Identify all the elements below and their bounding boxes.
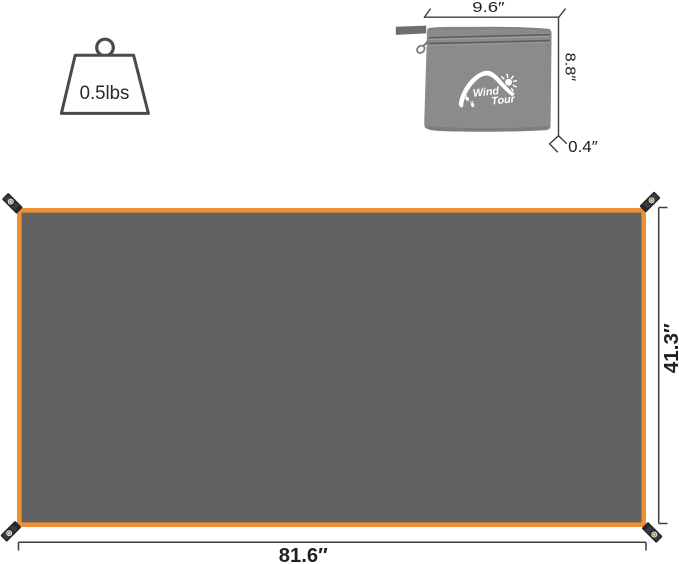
svg-text:0.5lbs: 0.5lbs xyxy=(80,82,130,104)
svg-text:9.6″: 9.6″ xyxy=(472,0,505,16)
svg-text:0.4″: 0.4″ xyxy=(568,139,598,156)
svg-text:Tour: Tour xyxy=(491,93,517,107)
svg-text:8.8″: 8.8″ xyxy=(561,53,578,82)
svg-text:41.3″: 41.3″ xyxy=(660,323,679,373)
svg-text:81.6″: 81.6″ xyxy=(279,545,328,564)
